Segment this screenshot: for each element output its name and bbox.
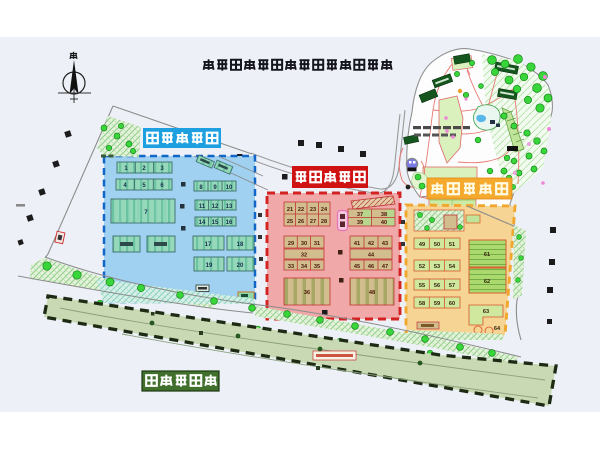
svg-text:21: 21 — [287, 207, 293, 213]
svg-text:49: 49 — [419, 242, 425, 248]
svg-text:16: 16 — [226, 220, 233, 226]
svg-text:40: 40 — [381, 220, 387, 226]
svg-text:50: 50 — [434, 242, 440, 248]
svg-text:56: 56 — [434, 283, 440, 289]
svg-text:17: 17 — [205, 242, 212, 248]
svg-text:12: 12 — [212, 204, 219, 210]
svg-text:37: 37 — [357, 212, 363, 218]
svg-text:23: 23 — [310, 207, 316, 213]
svg-text:18: 18 — [237, 242, 244, 248]
svg-text:45: 45 — [354, 264, 360, 270]
svg-text:46: 46 — [368, 264, 374, 270]
svg-text:28: 28 — [321, 219, 327, 225]
svg-text:60: 60 — [449, 301, 455, 307]
svg-text:29: 29 — [288, 241, 294, 247]
svg-text:51: 51 — [449, 242, 455, 248]
svg-text:20: 20 — [237, 263, 244, 269]
svg-text:52: 52 — [419, 264, 425, 270]
svg-text:34: 34 — [301, 264, 308, 270]
svg-text:54: 54 — [449, 264, 456, 270]
svg-text:47: 47 — [382, 264, 388, 270]
svg-text:32: 32 — [301, 253, 307, 259]
svg-text:38: 38 — [381, 212, 387, 218]
svg-text:19: 19 — [206, 263, 213, 269]
svg-text:53: 53 — [434, 264, 440, 270]
svg-text:24: 24 — [321, 207, 328, 213]
svg-text:48: 48 — [369, 290, 375, 296]
svg-text:26: 26 — [298, 219, 304, 225]
svg-text:13: 13 — [226, 204, 233, 210]
svg-text:11: 11 — [199, 204, 206, 210]
svg-text:42: 42 — [368, 241, 374, 247]
svg-text:61: 61 — [484, 252, 490, 258]
svg-text:63: 63 — [483, 309, 489, 315]
svg-text:36: 36 — [304, 290, 310, 296]
svg-text:57: 57 — [449, 283, 455, 289]
svg-text:35: 35 — [314, 264, 320, 270]
svg-text:64: 64 — [494, 326, 501, 332]
svg-text:58: 58 — [419, 301, 425, 307]
svg-text:62: 62 — [484, 279, 490, 285]
svg-text:27: 27 — [310, 219, 316, 225]
svg-text:15: 15 — [212, 220, 219, 226]
svg-text:39: 39 — [357, 220, 363, 226]
svg-text:33: 33 — [288, 264, 294, 270]
svg-text:25: 25 — [287, 219, 293, 225]
svg-text:55: 55 — [419, 283, 425, 289]
svg-text:10: 10 — [226, 185, 233, 191]
svg-text:41: 41 — [354, 241, 360, 247]
svg-text:14: 14 — [199, 220, 206, 226]
svg-text:22: 22 — [298, 207, 304, 213]
svg-text:44: 44 — [368, 253, 375, 259]
svg-text:43: 43 — [382, 241, 388, 247]
svg-text:31: 31 — [314, 241, 320, 247]
svg-text:30: 30 — [301, 241, 307, 247]
svg-text:59: 59 — [434, 301, 440, 307]
